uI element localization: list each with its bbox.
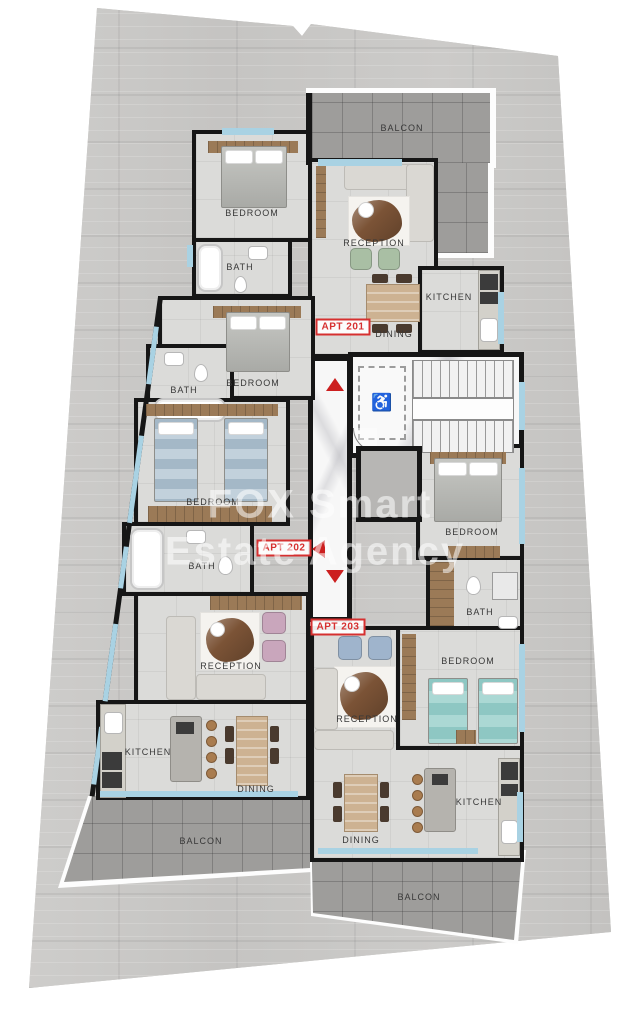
room-label: RECEPTION — [200, 661, 262, 671]
wardrobe — [148, 506, 272, 522]
decor-plate — [344, 676, 360, 692]
oven — [102, 772, 122, 788]
apartment-label-202: APT 202 — [257, 540, 312, 557]
window — [519, 382, 525, 430]
window — [517, 792, 523, 842]
room-label: BALCON — [397, 892, 440, 902]
wall — [306, 93, 312, 165]
elevator — [356, 446, 422, 522]
bath-sink — [186, 530, 206, 544]
floor-plan: ♿ — [0, 0, 632, 1024]
room-label: BALCON — [380, 123, 423, 133]
room-label: KITCHEN — [125, 747, 172, 757]
armchair — [350, 248, 372, 270]
room-label: RECEPTION — [343, 238, 405, 248]
fridge — [480, 274, 498, 290]
apartment-label-201: APT 201 — [316, 319, 371, 336]
sofa — [314, 730, 394, 750]
entrance-arrow-up-icon — [326, 378, 344, 391]
armchair — [262, 612, 286, 634]
window — [187, 245, 193, 267]
room-label: BATH — [188, 561, 215, 571]
oven — [480, 292, 498, 304]
armchair — [368, 636, 392, 660]
toilet — [234, 276, 247, 293]
room-label: BEDROOM — [445, 527, 499, 537]
oven — [501, 784, 518, 796]
room-label: BATH — [226, 262, 253, 272]
dining-table — [236, 716, 268, 786]
tv-unit — [210, 596, 302, 610]
single-bed — [224, 418, 268, 502]
stairs-flight — [412, 360, 514, 398]
room-label: KITCHEN — [426, 292, 473, 302]
wardrobe — [402, 634, 416, 720]
dining-chair — [270, 748, 279, 764]
single-bed — [154, 418, 198, 502]
stool — [206, 720, 217, 731]
dining-chair — [372, 274, 388, 283]
decor-plate — [358, 202, 374, 218]
toilet — [466, 576, 481, 595]
room-label: DINING — [375, 329, 413, 339]
dining-table — [344, 774, 378, 832]
bench — [448, 546, 500, 558]
hob — [176, 722, 194, 734]
window — [318, 848, 478, 854]
apartment-label-203: APT 203 — [311, 619, 366, 636]
dining-chair — [225, 748, 234, 764]
room-label: DINING — [237, 784, 275, 794]
room-label: BEDROOM — [225, 208, 279, 218]
stove — [102, 752, 122, 770]
balcony-tiles — [436, 163, 488, 253]
room-label: KITCHEN — [456, 797, 503, 807]
kitchen-sink — [480, 318, 498, 342]
stool — [412, 774, 423, 785]
window — [498, 292, 504, 344]
dining-chair — [380, 782, 389, 798]
room-label: BEDROOM — [226, 378, 280, 388]
fridge — [501, 762, 518, 780]
window — [519, 644, 525, 732]
dining-chair — [333, 782, 342, 798]
window — [318, 159, 402, 166]
double-bed — [434, 458, 502, 522]
room-label: BEDROOM — [186, 497, 240, 507]
armchair — [378, 248, 400, 270]
shower — [492, 572, 518, 600]
dining-table — [366, 284, 420, 322]
tv-unit — [316, 166, 326, 238]
bath-sink — [164, 352, 184, 366]
sofa — [406, 164, 434, 242]
stairs-flight — [412, 420, 514, 453]
double-bed — [221, 146, 287, 208]
dining-chair — [380, 806, 389, 822]
stool — [412, 822, 423, 833]
bath-sink — [248, 246, 268, 260]
window — [519, 468, 525, 544]
headboard-shelf — [146, 404, 278, 416]
toilet — [194, 364, 208, 382]
dining-chair — [333, 806, 342, 822]
stool — [412, 806, 423, 817]
stool — [206, 768, 217, 779]
dining-chair — [396, 274, 412, 283]
dining-chair — [270, 726, 279, 742]
toilet — [218, 556, 233, 575]
stool — [206, 752, 217, 763]
stool — [206, 736, 217, 747]
kitchen-sink — [104, 712, 123, 734]
sofa — [166, 616, 196, 700]
stool — [412, 790, 423, 801]
hob — [432, 774, 448, 785]
room-label: BATH — [466, 607, 493, 617]
nightstand — [456, 730, 476, 744]
dining-chair — [225, 726, 234, 742]
closet — [430, 562, 454, 626]
armchair — [262, 640, 286, 662]
bath-sink — [498, 616, 518, 629]
single-bed — [478, 678, 518, 744]
room-label: RECEPTION — [336, 714, 398, 724]
bathtub — [130, 528, 164, 590]
entrance-arrow-left-icon — [312, 540, 325, 558]
room-label: BALCON — [179, 836, 222, 846]
entrance-arrow-down-icon — [326, 570, 344, 583]
room-label: BEDROOM — [441, 656, 495, 666]
wheelchair-icon: ♿ — [371, 393, 392, 412]
stairs-landing — [412, 398, 514, 420]
sofa — [314, 668, 338, 730]
double-bed — [226, 312, 290, 372]
armchair — [338, 636, 362, 660]
room-label: DINING — [342, 835, 380, 845]
kitchen-sink — [501, 820, 518, 844]
sofa — [196, 674, 266, 700]
decor-plate — [210, 622, 225, 637]
room-label: BATH — [170, 385, 197, 395]
window — [222, 128, 274, 135]
bathtub — [197, 244, 223, 292]
